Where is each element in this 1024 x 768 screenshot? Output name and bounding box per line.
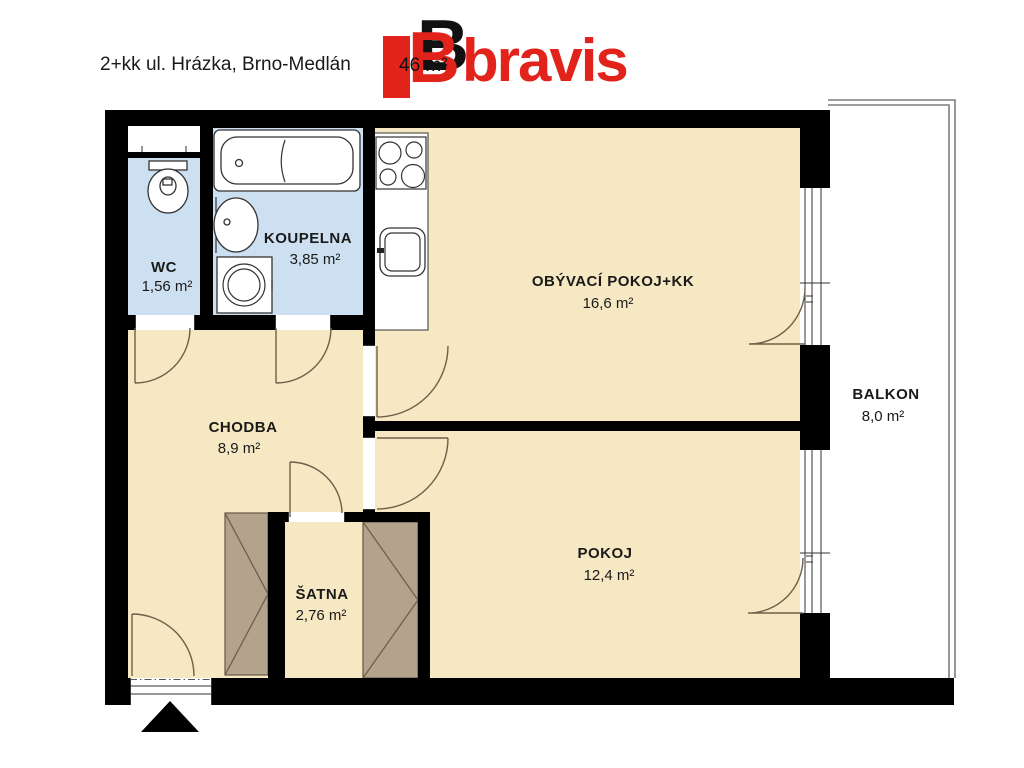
kitchen-sink <box>377 228 425 276</box>
wall-right-3 <box>800 613 830 678</box>
wall-right-1 <box>800 128 830 188</box>
wall-living-pokoj <box>375 421 800 431</box>
label-satna: ŠATNA <box>295 585 348 603</box>
label-pokoj-area: 12,4 m² <box>584 567 635 584</box>
logo-wordmark: bravis <box>462 31 627 91</box>
wardrobe-left <box>225 513 268 675</box>
entry-door-opening <box>130 678 212 705</box>
label-wc-area: 1,56 m² <box>142 278 193 295</box>
label-obyvaci-area: 16,6 m² <box>583 295 634 312</box>
label-balkon: BALKON <box>852 386 919 403</box>
wall-central <box>363 110 375 345</box>
label-obyvaci: OBÝVACÍ POKOJ+KK <box>532 272 694 290</box>
label-chodba-area: 8,9 m² <box>218 440 261 457</box>
wall-left <box>105 110 128 705</box>
shaft <box>128 126 200 152</box>
wall-wc-bath-separator <box>200 128 213 315</box>
bathtub <box>214 130 360 191</box>
label-balkon-area: 8,0 m² <box>862 408 905 425</box>
label-pokoj: POKOJ <box>577 545 632 562</box>
washing-machine <box>217 257 272 313</box>
entrance-arrow <box>141 701 199 732</box>
wall-top <box>105 110 830 128</box>
label-chodba: CHODBA <box>209 419 278 436</box>
floor-plan: WC 1,56 m² KOUPELNA 3,85 m² CHODBA 8,9 m… <box>0 0 1024 768</box>
label-wc: WC <box>151 259 177 276</box>
toilet <box>148 161 188 213</box>
listing-title: 2+kk ul. Hrázka, Brno-Medlán <box>100 54 351 76</box>
wall-bottom <box>105 678 954 705</box>
balcony-window-pokoj <box>800 450 830 613</box>
wall-satna-right <box>418 512 430 678</box>
balcony-window-living <box>800 188 830 345</box>
wall-right-2 <box>800 345 830 450</box>
wardrobe-right <box>363 522 418 678</box>
label-koupelna: KOUPELNA <box>264 230 352 247</box>
label-satna-area: 2,76 m² <box>296 607 347 624</box>
floorplan-page: 2+kk ul. Hrázka, Brno-Medlán B B bravis … <box>0 0 1024 768</box>
wall-satna-left <box>268 512 285 678</box>
bathroom-sink <box>214 197 258 253</box>
listing-area: 46 m² <box>399 55 448 77</box>
label-koupelna-area: 3,85 m² <box>290 251 341 268</box>
